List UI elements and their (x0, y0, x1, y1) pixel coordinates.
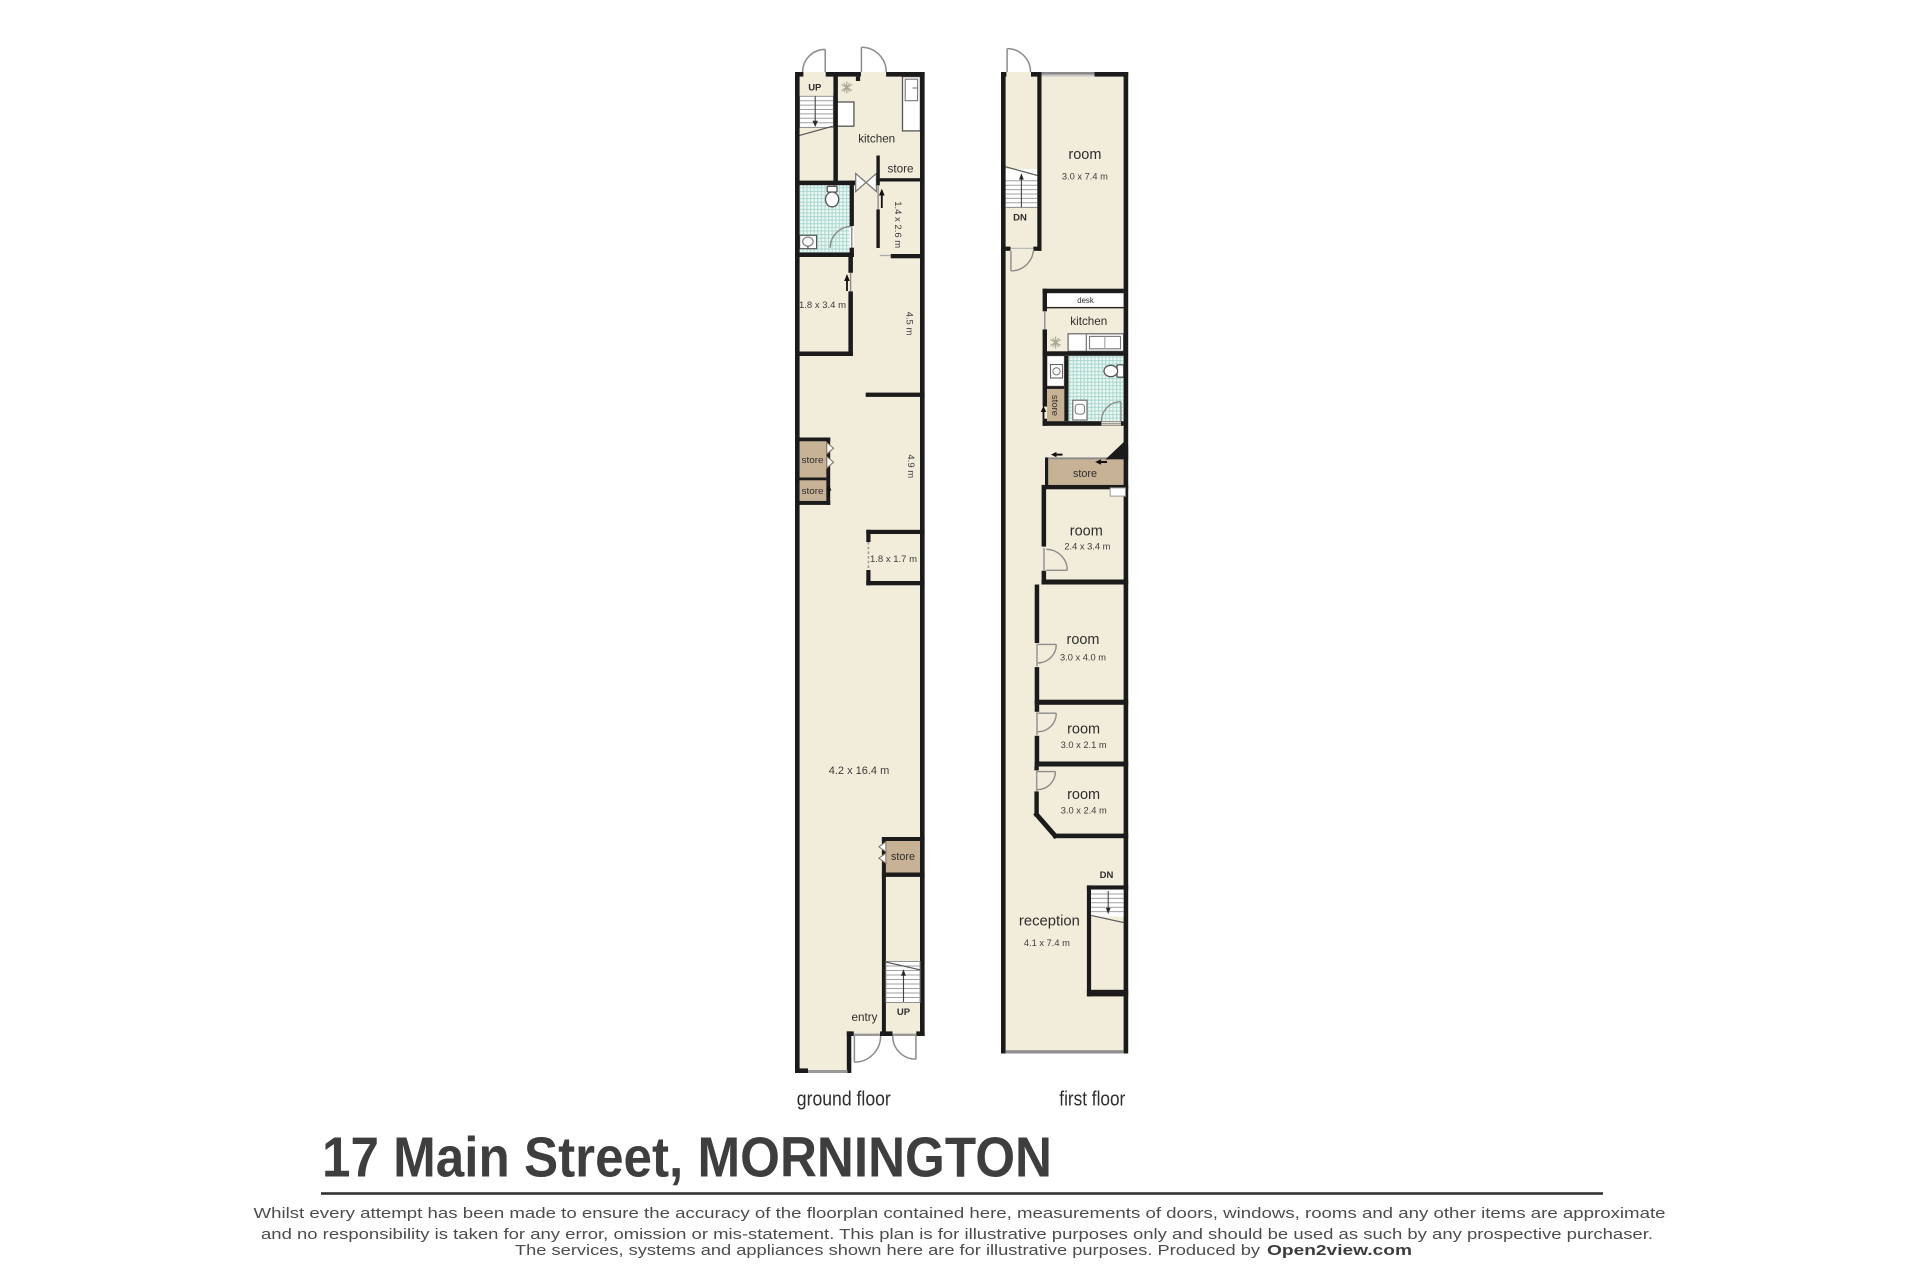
svg-text:1.8 x 3.4 m: 1.8 x 3.4 m (799, 300, 846, 311)
svg-text:store: store (888, 161, 914, 175)
svg-text:2.4 x 3.4 m: 2.4 x 3.4 m (1064, 541, 1110, 551)
svg-text:room: room (1068, 146, 1101, 163)
svg-text:store: store (1049, 395, 1060, 416)
svg-text:room: room (1067, 786, 1100, 803)
svg-text:reception: reception (1019, 913, 1080, 930)
svg-text:room: room (1067, 720, 1100, 737)
svg-text:desk: desk (1077, 296, 1094, 305)
svg-text:kitchen: kitchen (1070, 314, 1107, 328)
svg-text:Whilst every attempt has been: Whilst every attempt has been made to en… (254, 1205, 1666, 1222)
svg-text:3.0 x 4.0 m: 3.0 x 4.0 m (1060, 652, 1106, 662)
svg-text:and no responsibility is taken: and no responsibility is taken for any e… (261, 1226, 1653, 1243)
svg-text:UP: UP (808, 83, 822, 94)
svg-text:4.1 x 7.4 m: 4.1 x 7.4 m (1024, 938, 1070, 948)
svg-text:ground floor: ground floor (797, 1088, 891, 1110)
svg-text:room: room (1070, 523, 1103, 540)
svg-text:1.8 x 1.7 m: 1.8 x 1.7 m (870, 554, 917, 565)
svg-text:entry: entry (852, 1010, 878, 1024)
svg-text:DN: DN (1100, 870, 1114, 881)
svg-text:store: store (891, 851, 915, 863)
svg-text:1.4 x 2.6 m: 1.4 x 2.6 m (892, 201, 903, 248)
svg-text:room: room (1067, 631, 1100, 648)
svg-text:4.9 m: 4.9 m (905, 454, 916, 478)
svg-text:3.0 x 7.4 m: 3.0 x 7.4 m (1062, 171, 1108, 181)
svg-text:UP: UP (897, 1007, 911, 1018)
svg-text:3.0 x 2.4 m: 3.0 x 2.4 m (1061, 806, 1107, 816)
svg-text:The services, systems and appl: The services, systems and appliances sho… (515, 1242, 1261, 1259)
svg-text:store: store (802, 486, 824, 497)
svg-text:4.5 m: 4.5 m (904, 312, 915, 336)
svg-text:store: store (1073, 468, 1097, 480)
svg-text:store: store (802, 455, 824, 466)
svg-text:Open2view.com: Open2view.com (1267, 1242, 1412, 1259)
svg-text:17 Main Street, MORNINGTON: 17 Main Street, MORNINGTON (322, 1126, 1052, 1190)
svg-text:4.2 x 16.4 m: 4.2 x 16.4 m (829, 765, 890, 777)
svg-text:kitchen: kitchen (858, 132, 895, 146)
svg-text:3.0 x 2.1 m: 3.0 x 2.1 m (1061, 740, 1107, 750)
svg-text:DN: DN (1013, 213, 1027, 224)
svg-text:first floor: first floor (1059, 1088, 1125, 1110)
